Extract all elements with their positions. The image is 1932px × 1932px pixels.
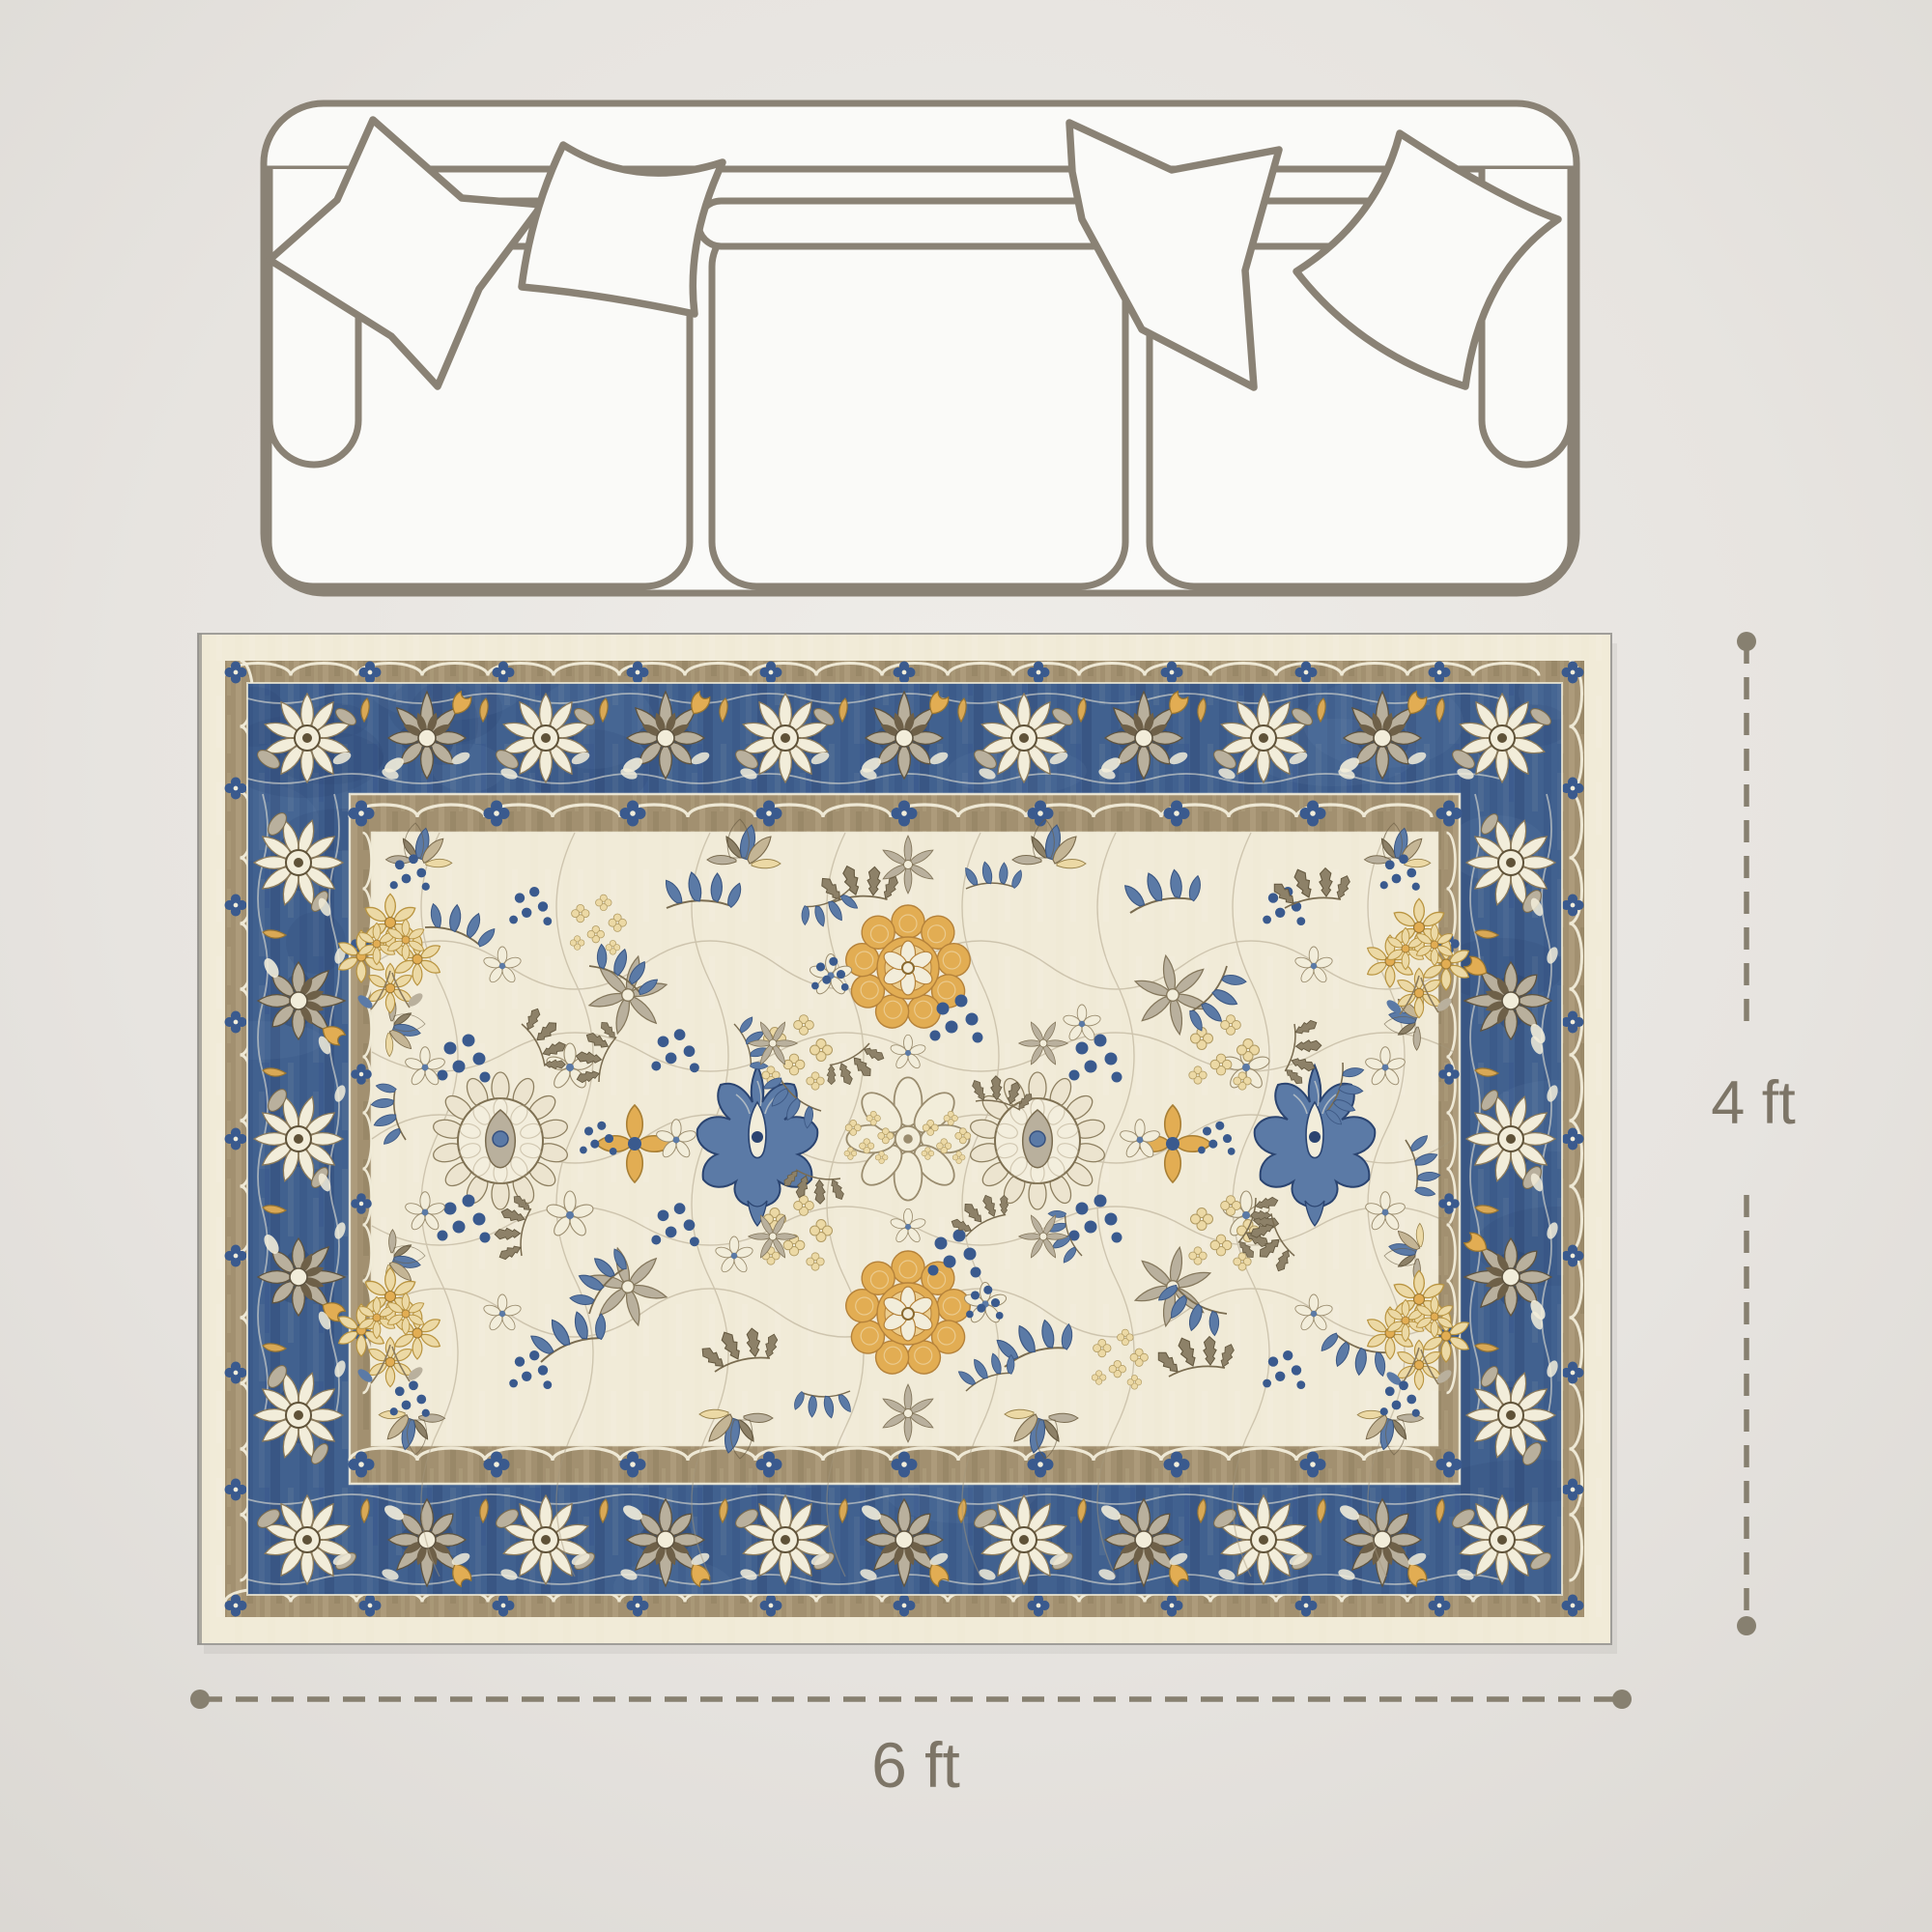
svg-text:6 ft: 6 ft bbox=[871, 1729, 960, 1801]
svg-text:4 ft: 4 ft bbox=[1711, 1069, 1796, 1137]
